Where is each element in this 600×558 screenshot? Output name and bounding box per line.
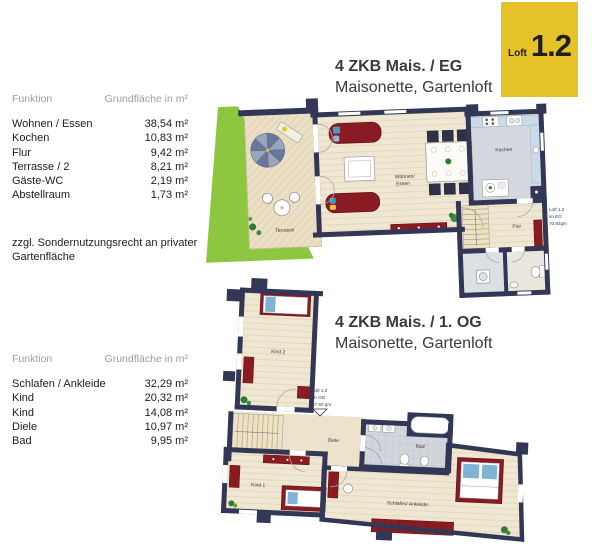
room-label: Diele (12, 420, 37, 434)
room-area: 10,83 m² (145, 131, 188, 145)
eg-area-annotation: Loft 1.2 im EG 70,92qm (549, 207, 567, 226)
kind2-label: Kind 2 (271, 349, 286, 356)
room-area: 9,42 m² (151, 146, 188, 160)
table-row: Flur9,42 m² (12, 146, 188, 160)
wardrobe-icon (534, 220, 543, 246)
wohnen-label: Wohnen/ (395, 174, 416, 181)
room-label: Bad (12, 434, 32, 448)
coffee-table-icon (344, 156, 375, 181)
room-area: 1,73 m² (151, 188, 188, 202)
table-row: Terrasse / 28,21 m² (12, 160, 188, 174)
dresser-icon (328, 472, 339, 498)
room-area: 9,95 m² (151, 434, 188, 448)
room-area: 14,08 m² (145, 406, 188, 420)
og-title-block: 4 ZKB Mais. / 1. OG Maisonette, Gartenlo… (335, 312, 492, 354)
table-row: Diele10,97 m² (12, 420, 188, 434)
loft-number-badge: Loft 1.2 (501, 2, 578, 97)
room-area: 20,32 m² (145, 391, 188, 405)
flur-label: Flur (512, 224, 521, 230)
room-label: Gäste-WC (12, 174, 63, 188)
kitchen-island-icon (482, 179, 509, 197)
terrasse-label: Terrasse (275, 227, 295, 234)
double-bed-icon (456, 458, 504, 504)
og-title: 4 ZKB Mais. / 1. OG (335, 312, 492, 333)
kind1-label: Kind 1 (251, 482, 266, 489)
room-area: 38,54 m² (145, 117, 188, 131)
diele-label: Diele (327, 438, 339, 445)
essen-label: Essen (396, 181, 410, 188)
og-subtitle: Maisonette, Gartenloft (335, 333, 492, 354)
table-header: Funktion Grundfläche in m² (12, 352, 188, 366)
annotation-line: im EG (549, 214, 562, 219)
stool-icon (343, 484, 352, 493)
table-row: Wohnen / Essen38,54 m² (12, 117, 188, 131)
badge-loft-label: Loft (508, 48, 527, 59)
room-area: 8,21 m² (151, 160, 188, 174)
room-label: Wohnen / Essen (12, 117, 93, 131)
eg-plan-drawing: Terrasse Wohnen/ Essen Kochen Flur (200, 92, 554, 308)
annotation-line: Loft 1.2 (549, 207, 565, 212)
annotation-line: Loft 1.2 (312, 388, 328, 393)
col-area: Grundfläche in m² (105, 352, 188, 366)
room-label: Flur (12, 146, 31, 160)
table-row: Kind14,08 m² (12, 406, 188, 420)
bad-label: Bad (416, 444, 425, 450)
table-row: Kochen10,83 m² (12, 131, 188, 145)
col-area: Grundfläche in m² (105, 92, 188, 106)
kochen-label: Kochen (495, 147, 512, 154)
table-row: Gäste-WC2,19 m² (12, 174, 188, 188)
dining-table-icon (425, 129, 473, 195)
wardrobe-icon (229, 465, 240, 487)
area-table-eg: Funktion Grundfläche in m² Wohnen / Esse… (12, 92, 188, 202)
bed-icon (281, 486, 326, 512)
annotation-line: 87,60 qm (312, 402, 331, 407)
col-function: Funktion (12, 352, 52, 366)
og-area-annotation: Loft 1.2 im OG 87,60 qm (312, 388, 331, 416)
annotation-line: im OG (312, 395, 326, 400)
table-row: Schlafen / Ankleide32,29 m² (12, 377, 188, 391)
annotation-line: 70,92qm (549, 221, 567, 226)
floorplan-datasheet: Funktion Grundfläche in m² Wohnen / Esse… (0, 0, 600, 558)
eg-subtitle: Maisonette, Gartenloft (335, 77, 492, 98)
room-area: 10,97 m² (145, 420, 188, 434)
garden-usage-note: zzgl. Sondernutzungsrecht an privater Ga… (12, 236, 217, 264)
wardrobe-icon (243, 357, 254, 383)
col-function: Funktion (12, 92, 52, 106)
room-label: Kind (12, 391, 34, 405)
badge-loft-number: 1.2 (531, 28, 571, 64)
room-label: Kind (12, 406, 34, 420)
down-arrow-icon (313, 409, 327, 416)
staircase-icon (232, 413, 284, 451)
staircase-icon (462, 205, 490, 249)
eg-title-block: 4 ZKB Mais. / EG Maisonette, Gartenloft (335, 56, 492, 98)
room-label: Abstellraum (12, 188, 70, 202)
toilet-icon (531, 266, 546, 279)
area-table-og: Funktion Grundfläche in m² Schlafen / An… (12, 352, 188, 448)
room-label: Kochen (12, 131, 49, 145)
bidet-icon (420, 456, 428, 466)
room-label: Terrasse / 2 (12, 160, 69, 174)
bed-icon (260, 293, 311, 316)
bathtub-icon (407, 412, 454, 438)
room-area: 2,19 m² (151, 174, 188, 188)
table-header: Funktion Grundfläche in m² (12, 92, 188, 106)
table-row: Kind20,32 m² (12, 391, 188, 405)
badge-content: Loft 1.2 (508, 28, 571, 64)
table-row: Bad9,95 m² (12, 434, 188, 448)
table-row: Abstellraum1,73 m² (12, 188, 188, 202)
room-label: Schlafen / Ankleide (12, 377, 106, 391)
sofa-icon (329, 122, 382, 144)
room-area: 32,29 m² (145, 377, 188, 391)
eg-title: 4 ZKB Mais. / EG (335, 56, 492, 77)
